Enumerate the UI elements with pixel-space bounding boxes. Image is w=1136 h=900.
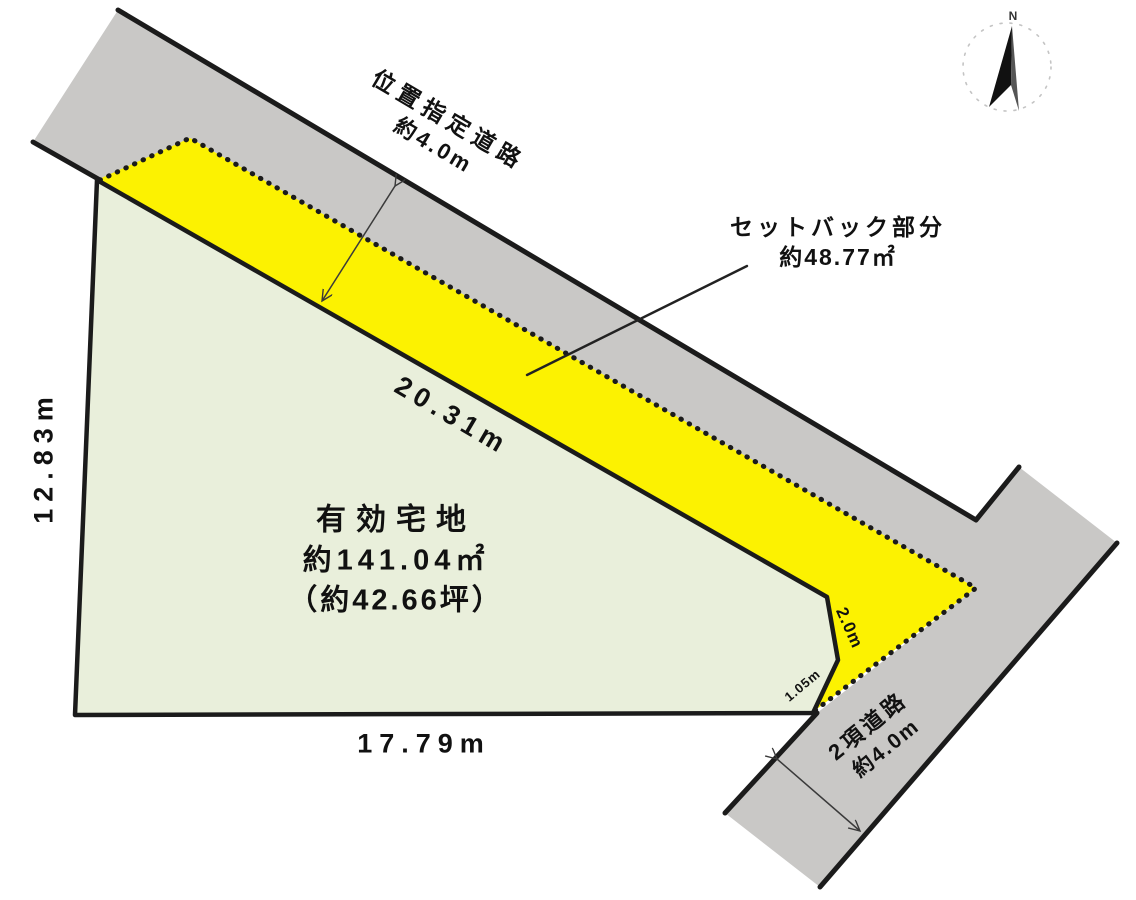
north-needle-icon [989,26,1012,107]
plot-name: 有効宅地 [288,499,504,540]
north-compass: N [963,9,1051,111]
north-label: N [1009,9,1018,23]
dim-bottom-edge-label: 17.79m [357,726,491,761]
site-plan-diagram: N 位置指定道路 約4.0m セットバック部分 約48.77㎡ 20.31m 1… [0,0,1136,900]
dim-left-edge-label: 12.83m [26,390,61,524]
setback-label: セットバック部分 約48.77㎡ [730,213,946,273]
north-needle-shade [1011,26,1019,111]
setback-area-value: 約48.77㎡ [730,243,946,273]
plot-area-tsubo: （約42.66坪） [288,581,504,621]
setback-name: セットバック部分 [730,213,946,243]
plot-area-label: 有効宅地 約141.04㎡ （約42.66坪） [288,499,504,620]
site-plan-svg: N [0,0,1136,900]
plot-area-m2: 約141.04㎡ [288,541,504,581]
